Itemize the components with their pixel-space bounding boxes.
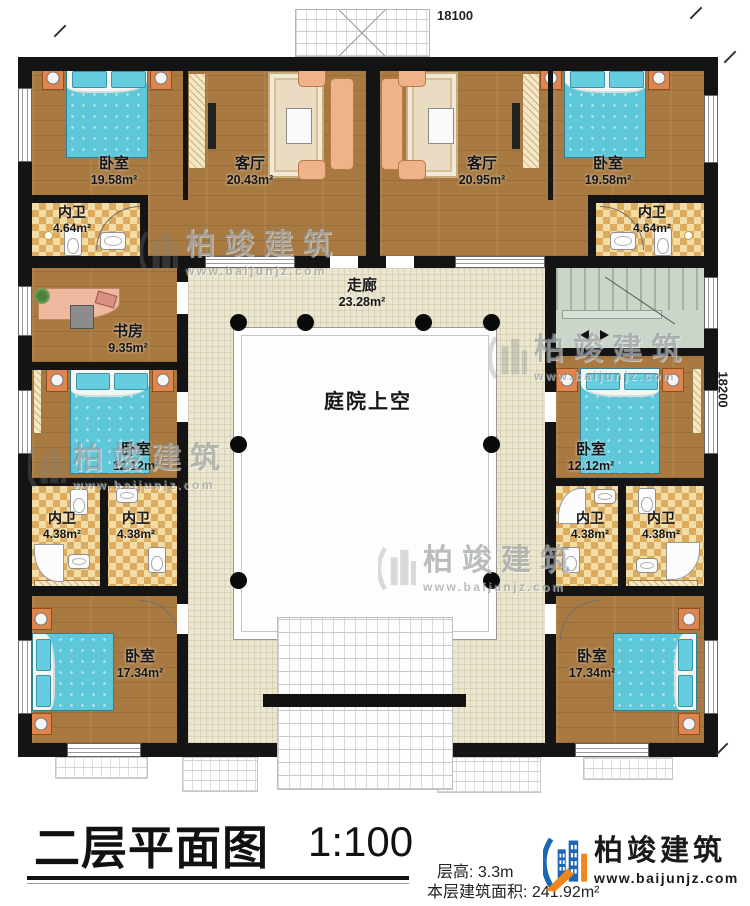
toilet	[562, 547, 580, 573]
floor-drain	[684, 231, 693, 240]
room-label-living-right: 客厅20.95m²	[459, 155, 506, 188]
wall-mr-bath-bottom	[556, 586, 704, 596]
door-bedroom-br	[545, 604, 556, 634]
room-label-bathroom-top-right: 内卫4.64m²	[633, 204, 671, 235]
wardrobe-top-right	[522, 73, 540, 169]
wardrobe-mid-left	[33, 368, 42, 434]
room-label-living-left: 客厅20.43m²	[227, 155, 274, 188]
window-right-1	[704, 95, 718, 163]
stair-arrow-left	[580, 330, 589, 340]
armchair	[298, 160, 326, 180]
nightstand	[556, 368, 578, 392]
column	[415, 314, 432, 331]
room-label-bedroom-mid-right: 卧室12.12m²	[568, 441, 615, 474]
eave-bottom-4	[583, 757, 673, 780]
nightstand	[30, 713, 52, 735]
room-label-bathroom-mid-left-2: 内卫4.38m²	[117, 510, 155, 541]
plant	[34, 288, 50, 304]
title-underline-thin	[27, 883, 409, 884]
door-bedroom-mr	[545, 392, 556, 422]
door-bedroom-bl	[177, 604, 188, 634]
sofa	[330, 78, 354, 170]
company-logo-icon	[543, 836, 587, 892]
dimension-right: 18200	[716, 355, 731, 425]
door-corridor-right	[386, 256, 414, 268]
corner-tick-top-left	[54, 25, 67, 38]
sheet-title: 二层平面图	[34, 812, 269, 878]
stair-arrow-right	[600, 330, 609, 340]
window-right-stair	[704, 277, 718, 329]
sheet-scale: 1:100	[308, 818, 413, 866]
door-corridor-left	[330, 256, 358, 268]
path-beam	[263, 694, 466, 707]
wall-bath-tl-side	[140, 195, 148, 256]
wall-divider-right	[548, 71, 553, 200]
room-label-corridor: 走廊23.28m²	[339, 277, 386, 310]
room-label-bedroom-top-right: 卧室19.58m²	[585, 155, 632, 188]
tv	[512, 103, 520, 149]
nightstand	[678, 608, 700, 630]
nightstand	[152, 368, 174, 392]
window-left-4	[18, 640, 32, 714]
wardrobe-top-left	[188, 73, 206, 169]
nightstand	[30, 608, 52, 630]
title-underline-thick	[27, 876, 409, 880]
tv	[208, 103, 216, 149]
room-label-bathroom-mid-left-1: 内卫4.38m²	[43, 510, 81, 541]
wall-stairs-bottom	[556, 348, 704, 356]
bed	[613, 633, 697, 711]
window-left-1	[18, 88, 32, 162]
sink	[594, 489, 616, 504]
room-label-bedroom-top-left: 卧室19.58m²	[91, 155, 138, 188]
wall-divider-left	[183, 71, 188, 200]
window-bottom-left	[67, 743, 141, 757]
column	[483, 436, 500, 453]
floor-drain	[44, 231, 53, 240]
dimension-top: 18100	[437, 8, 473, 23]
wall-ml-bed-bottom	[32, 478, 177, 486]
stair-railing	[562, 310, 662, 319]
floor-plan-sheet: 18100 18200	[0, 0, 750, 906]
wall-right-rooms	[545, 263, 556, 743]
coffee-table	[286, 108, 312, 144]
armchair	[398, 160, 426, 180]
sink	[116, 488, 138, 503]
room-label-bathroom-top-left: 内卫4.64m²	[53, 204, 91, 235]
column	[230, 314, 247, 331]
sofa	[381, 78, 403, 170]
room-label-courtyard: 庭院上空	[324, 390, 412, 414]
room-label-bedroom-bottom-left: 卧室17.34m²	[117, 648, 164, 681]
eave-bottom-2	[182, 757, 258, 792]
eave-bottom-1	[55, 757, 148, 779]
wall-left-rooms	[177, 263, 188, 743]
column	[297, 314, 314, 331]
corner-tick-right-upper	[724, 51, 737, 64]
room-label-bedroom-mid-left: 卧室12.12m²	[113, 441, 160, 474]
wall-bath-tr-top	[596, 195, 704, 203]
wall-ml-bath-divider	[100, 486, 108, 586]
column	[483, 572, 500, 589]
wall-outer-top	[18, 57, 718, 71]
wall-ml-bath-bottom	[32, 586, 177, 596]
corner-tick-top-right	[690, 7, 703, 20]
room-label-bedroom-bottom-right: 卧室17.34m²	[569, 648, 616, 681]
bed	[32, 633, 114, 711]
window-bottom-right	[575, 743, 649, 757]
wall-bath-tr-side	[588, 195, 596, 256]
entry-porch-roof-hatch	[295, 9, 430, 57]
wall-mr-bed-bottom	[556, 478, 704, 486]
column	[483, 314, 500, 331]
coffee-table	[428, 108, 454, 144]
stair-treads	[556, 268, 704, 310]
column	[230, 572, 247, 589]
room-label-study: 书房9.35m²	[108, 323, 148, 356]
room-label-bathroom-mid-right-1: 内卫4.38m²	[571, 510, 609, 541]
window-right-3	[704, 640, 718, 714]
wall-study-bottom	[32, 362, 177, 370]
window-left-2	[18, 286, 32, 336]
monitor	[70, 305, 94, 329]
sink	[68, 554, 90, 569]
company-website: www.baijunjz.com	[594, 870, 739, 886]
room-label-bathroom-mid-right-2: 内卫4.38m²	[642, 510, 680, 541]
sink	[636, 558, 658, 573]
company-name: 柏竣建筑	[594, 836, 739, 868]
sink	[100, 232, 126, 250]
sliding-door-living-right	[455, 256, 545, 268]
sliding-door-living-left	[205, 256, 295, 268]
company-logo: 柏竣建筑 www.baijunjz.com	[543, 836, 739, 892]
door-bedroom-ml	[177, 392, 188, 422]
wall-corridor-top	[32, 256, 704, 268]
wall-mr-bath-divider	[618, 486, 626, 586]
bed	[66, 66, 148, 158]
bed	[564, 66, 646, 158]
wardrobe-mid-right	[692, 368, 702, 434]
courtyard-void	[233, 327, 497, 640]
toilet	[148, 547, 166, 573]
column	[230, 436, 247, 453]
door-study	[177, 282, 188, 314]
nightstand	[662, 368, 684, 392]
nightstand	[46, 368, 68, 392]
wall-outer-bottom-left	[18, 743, 277, 757]
window-left-3	[18, 390, 32, 454]
wall-center-vertical	[366, 71, 380, 268]
nightstand	[678, 713, 700, 735]
wall-bath-tl-top	[32, 195, 140, 203]
